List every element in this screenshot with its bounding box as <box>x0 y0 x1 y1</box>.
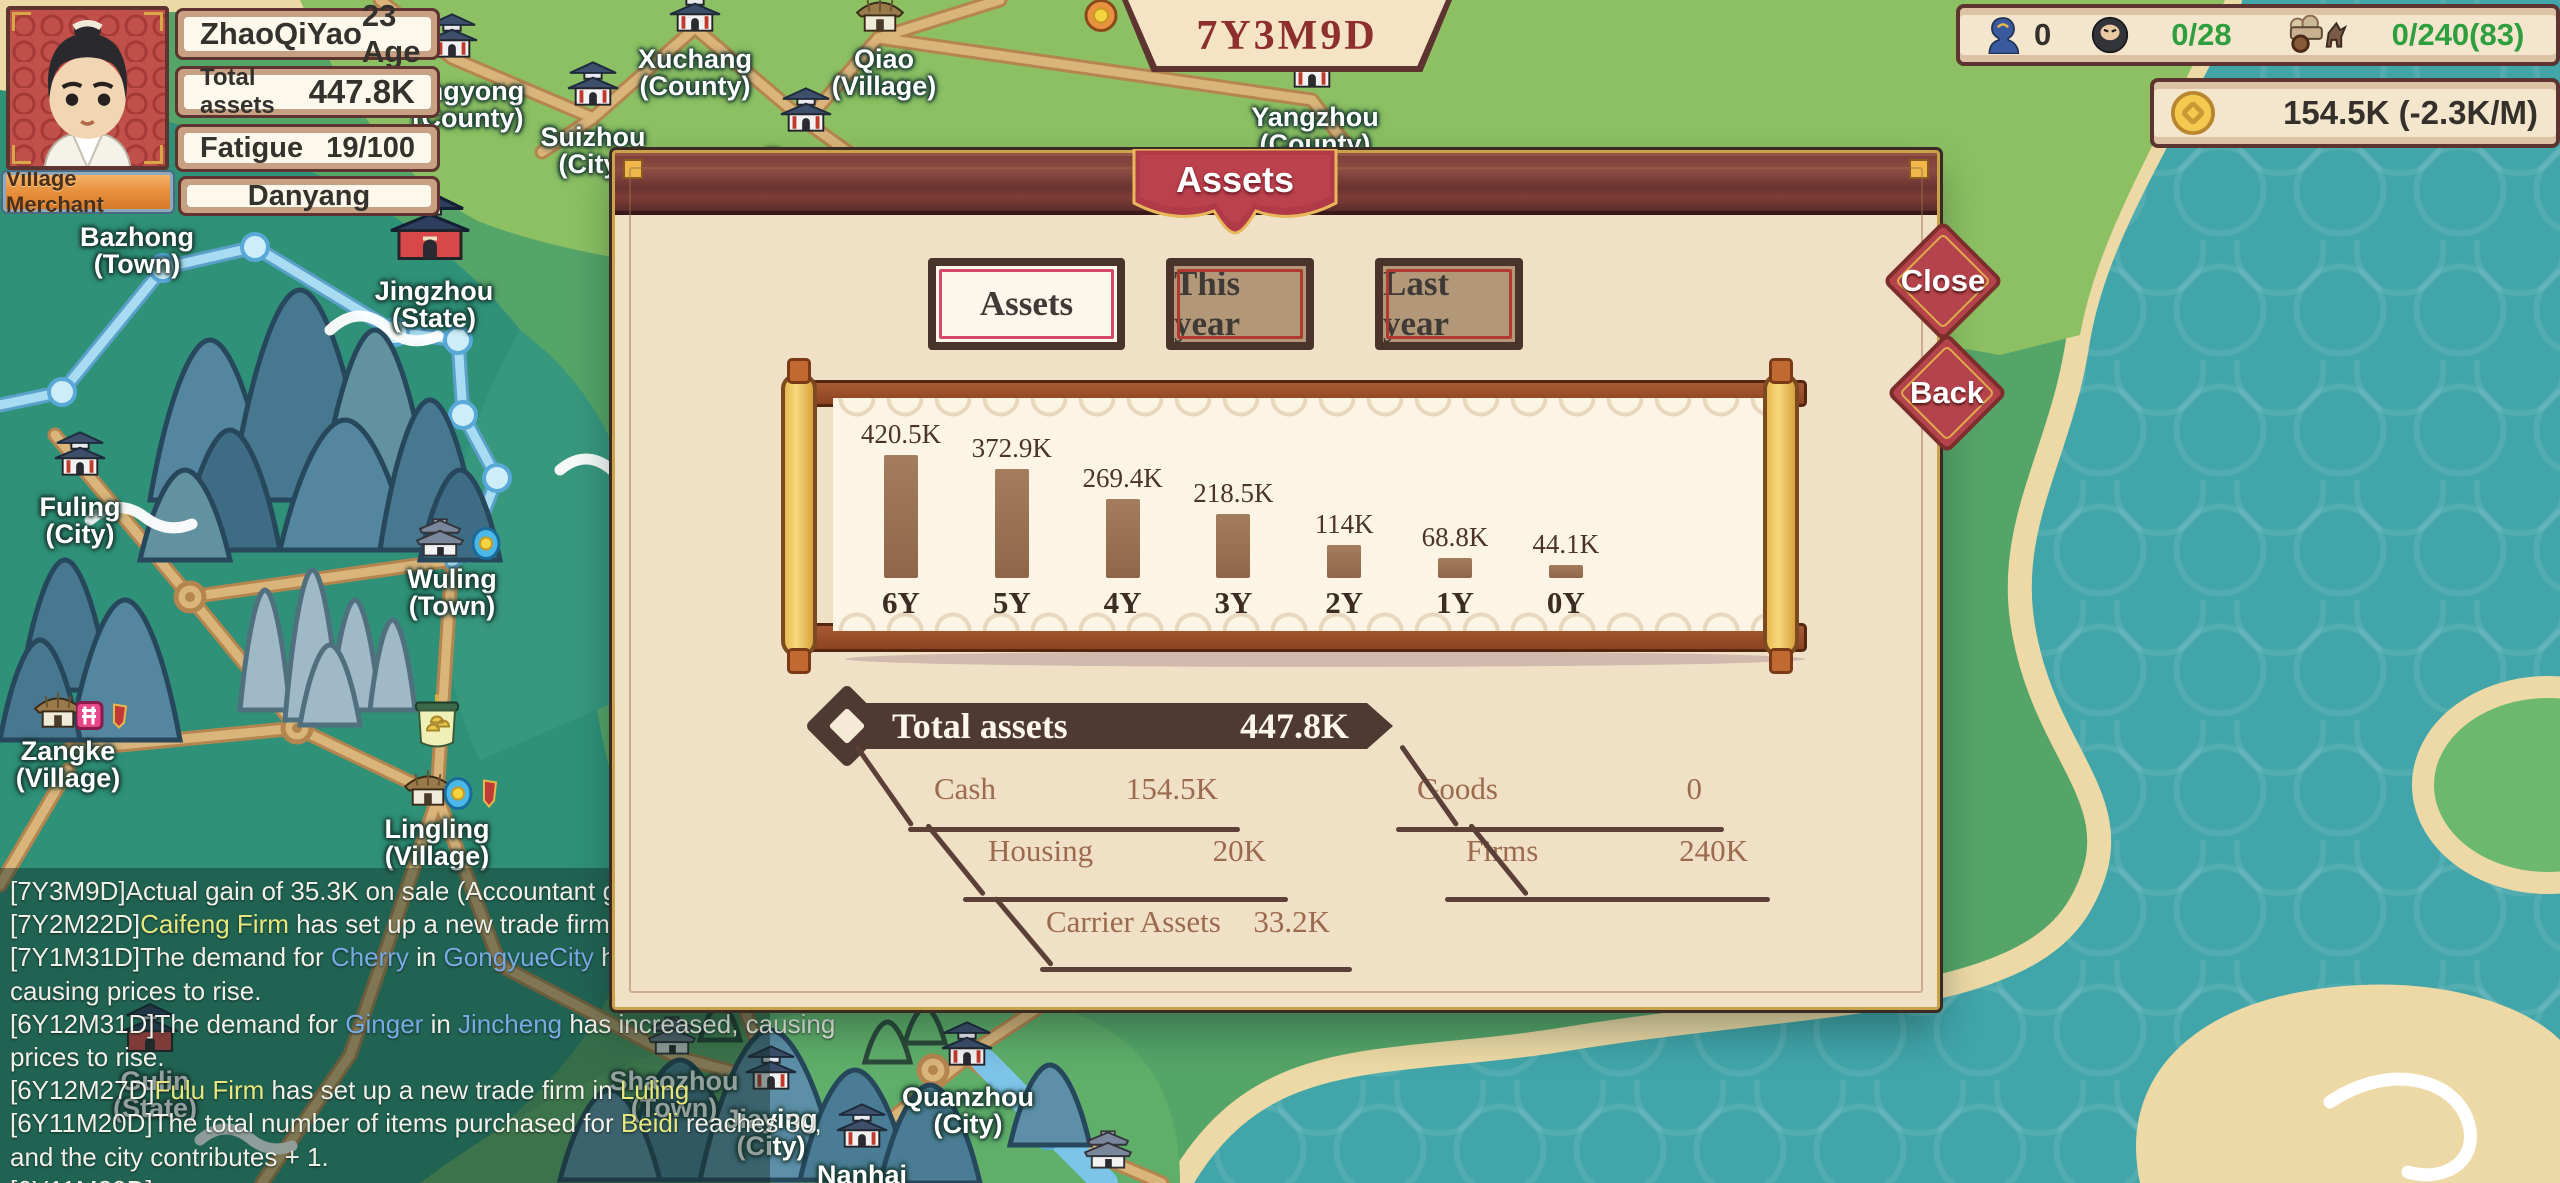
map-city-wuling[interactable]: Wuling(Town) <box>407 566 496 620</box>
date-banner: 7Y3M9D <box>1122 0 1452 72</box>
map-city-quanzhou[interactable]: Quanzhou(City) <box>902 1084 1034 1138</box>
map-city-type: (Village) <box>385 843 490 870</box>
game-screen: [7Y3M9D]Actual gain of 35.3K on sale (Ac… <box>0 0 2560 1183</box>
breakdown-underline <box>1040 967 1352 972</box>
breakdown-underline <box>963 897 1288 902</box>
player-fatigue-panel: Fatigue 19/100 <box>175 124 440 172</box>
breakdown-underline <box>908 827 1240 832</box>
player-role-badge: Village Merchant <box>3 172 173 212</box>
map-city-fuling[interactable]: Fuling(City) <box>40 494 121 548</box>
map-city-name: Bazhong <box>80 224 194 251</box>
wuling-badge-icon <box>471 527 501 566</box>
map-building-icon-runan <box>777 85 835 140</box>
log-line: causing prices to rise. <box>10 976 261 1007</box>
map-building-icon-nanhai <box>833 1101 891 1156</box>
apprentice-icon <box>1986 16 2020 54</box>
map-city-type: (Village) <box>16 765 121 792</box>
resource-bar: 0 0/28 0/240(83) <box>1956 4 2560 66</box>
breakdown-label-carrier-assets: Carrier Assets <box>1046 904 1221 940</box>
breakdown-connector <box>925 823 986 897</box>
map-building-icon-wuling <box>414 518 466 563</box>
assets-value: 447.8K <box>309 73 415 111</box>
breakdown-connector <box>1468 823 1529 897</box>
back-button[interactable]: Back <box>1904 350 1990 436</box>
map-city-name: Wuling <box>407 566 496 593</box>
breakdown-value: 0 <box>1396 771 1702 807</box>
tab-assets[interactable]: Assets <box>928 258 1125 350</box>
player-age: 23 Age <box>362 0 421 70</box>
modal-title-banner: Assets <box>1130 149 1340 241</box>
zangke-badge-icon <box>76 701 132 736</box>
log-line: [6Y12M31D]The demand for Ginger in Jinch… <box>10 1009 835 1040</box>
player-name-panel: ZhaoQiYao 23 Age <box>175 8 440 60</box>
map-city-name: Nanhai <box>817 1162 907 1183</box>
map-city-type: (County) <box>638 73 752 100</box>
total-assets-band: Total assets 447.8K <box>820 703 1393 749</box>
map-medal-icon <box>1083 0 1119 39</box>
breakdown-connector <box>1399 744 1459 827</box>
breakdown-connector <box>993 896 1054 967</box>
player-avatar[interactable] <box>6 6 169 170</box>
fatigue-label: Fatigue <box>200 132 303 165</box>
log-line: [6Y11M20D]The total number of items purc… <box>10 1108 822 1139</box>
breakdown-underline <box>1396 827 1724 832</box>
player-name: ZhaoQiYao <box>200 16 362 52</box>
map-city-name: Lingling <box>385 816 490 843</box>
lingling-badge-icon <box>444 777 504 816</box>
map-city-name: Qiao <box>832 46 937 73</box>
map-city-bazhong[interactable]: Bazhong(Town) <box>80 224 194 278</box>
assets-label: Total assets <box>200 64 309 120</box>
map-building-icon-qiao <box>854 0 906 40</box>
map-city-name: Quanzhou <box>902 1084 1034 1111</box>
player-assets-panel: Total assets 447.8K <box>175 66 440 118</box>
map-building-icon-suizhou <box>564 59 622 114</box>
map-city-name: Yangzhou <box>1251 104 1379 131</box>
breakdown-value: 154.5K <box>908 771 1218 807</box>
map-city-type: (Village) <box>832 73 937 100</box>
breakdown-value: 20K <box>963 833 1266 869</box>
tab-this-year[interactable]: This year <box>1166 258 1314 350</box>
avatar-face <box>10 17 165 170</box>
breakdown-label-goods: Goods <box>1417 771 1498 807</box>
fatigue-value: 19/100 <box>326 132 415 165</box>
map-city-name: Zangke <box>16 738 121 765</box>
map-city-type: (Town) <box>80 251 194 278</box>
map-building-icon-quanzhou <box>938 1019 996 1074</box>
modal-title: Assets <box>1130 159 1340 201</box>
log-line: [6Y11M20D] <box>10 1175 153 1183</box>
map-city-jingzhou[interactable]: Jingzhou(State) <box>375 278 493 332</box>
map-building-icon-house <box>1082 1130 1134 1175</box>
crew-count: 0/28 <box>2171 17 2231 53</box>
carrier-icon <box>2286 15 2348 55</box>
map-building-icon-fuling <box>51 429 109 484</box>
log-line: prices to rise. <box>10 1042 165 1073</box>
crew-icon <box>2091 16 2129 54</box>
breakdown-underline <box>1445 897 1770 902</box>
map-city-type: (State) <box>375 305 493 332</box>
tab-last-year[interactable]: Last year <box>1375 258 1523 350</box>
total-diamond-icon <box>805 684 890 769</box>
map-city-name: Xuchang <box>638 46 752 73</box>
breakdown-value: 240K <box>1445 833 1748 869</box>
coin-icon <box>2170 90 2216 136</box>
map-city-name: Suizhou <box>541 124 646 151</box>
map-city-zangke[interactable]: Zangke(Village) <box>16 738 121 792</box>
asset-chart <box>833 398 1765 631</box>
log-line: [6Y12M27D]Fulu Firm has set up a new tra… <box>10 1075 689 1106</box>
assets-modal: Assets Assets This year Last year 420.5K… <box>612 150 1940 1010</box>
scroll-right-roller <box>1763 373 1799 657</box>
map-building-icon-xuchang <box>666 0 724 40</box>
log-line: and the city contributes + 1. <box>10 1142 329 1173</box>
map-city-nanhai[interactable]: Nanhai <box>817 1162 907 1183</box>
log-line: [7Y3M9D]Actual gain of 35.3K on sale (Ac… <box>10 876 717 907</box>
breakdown-label-housing: Housing <box>988 833 1093 869</box>
player-location: Danyang <box>248 180 370 213</box>
map-city-qiao[interactable]: Qiao(Village) <box>832 46 937 100</box>
player-location-panel[interactable]: Danyang <box>178 176 440 216</box>
close-button[interactable]: Close <box>1900 238 1986 324</box>
map-city-type: (City) <box>40 521 121 548</box>
scroll-left-roller <box>781 373 817 657</box>
breakdown-connector <box>854 744 914 827</box>
total-assets-value: 447.8K <box>1240 705 1349 747</box>
map-city-type: (City) <box>902 1111 1034 1138</box>
money-bar: 154.5K (-2.3K/M) <box>2150 78 2560 148</box>
breakdown-value: 33.2K <box>1040 904 1330 940</box>
total-assets-label: Total assets <box>892 705 1068 747</box>
map-city-lingling[interactable]: Lingling(Village) <box>385 816 490 870</box>
apprentice-count: 0 <box>2034 17 2051 53</box>
lingling-banner-icon <box>414 695 460 762</box>
carrier-count: 0/240(83) <box>2392 17 2525 53</box>
date-value: 7Y3M9D <box>1196 12 1377 60</box>
breakdown-label-cash: Cash <box>934 771 996 807</box>
money-value: 154.5K (-2.3K/M) <box>2216 94 2538 132</box>
map-city-xuchang[interactable]: Xuchang(County) <box>638 46 752 100</box>
map-city-type: (Town) <box>407 593 496 620</box>
breakdown-label-firms: Firms <box>1466 833 1538 869</box>
map-city-name: Jingzhou <box>375 278 493 305</box>
map-city-name: Fuling <box>40 494 121 521</box>
